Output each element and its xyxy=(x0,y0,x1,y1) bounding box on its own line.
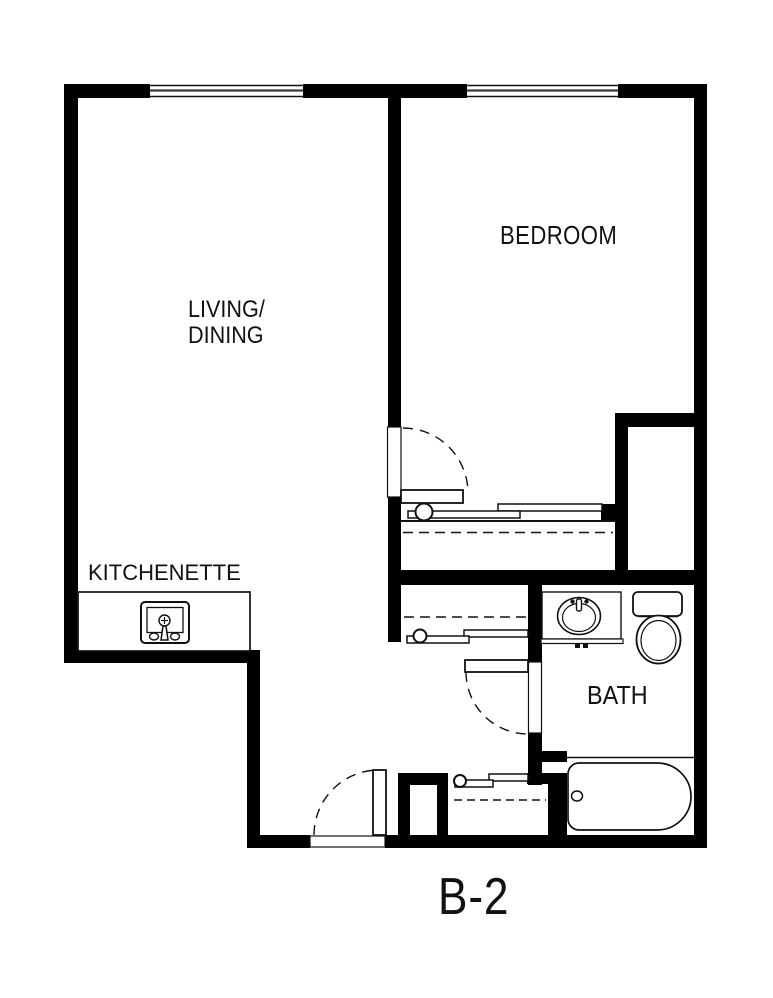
living-label-line1: LIVING/ xyxy=(188,297,265,323)
window-living xyxy=(150,84,303,98)
floor-plan-drawing xyxy=(0,0,773,998)
living-dining-label: LIVING/ DINING xyxy=(188,297,265,349)
utility-chase xyxy=(398,773,448,838)
bedroom-label: BEDROOM xyxy=(500,222,617,248)
bathtub xyxy=(567,758,694,831)
toilet xyxy=(633,592,682,664)
unit-title: B-2 xyxy=(438,871,509,923)
bath-door xyxy=(465,660,542,734)
bedroom-closet xyxy=(401,504,615,533)
slider-wheel xyxy=(416,504,433,521)
bedroom-door xyxy=(388,427,469,503)
floor-plan-b2: BEDROOM LIVING/ DINING KITCHENETTE BATH … xyxy=(0,0,773,998)
bath-label: BATH xyxy=(587,682,648,708)
exterior-walls xyxy=(64,84,707,848)
bathroom-sink xyxy=(558,598,601,635)
kitchen-sink xyxy=(141,602,189,643)
kitchenette-label: KITCHENETTE xyxy=(88,562,241,584)
slider-wheel xyxy=(454,775,466,787)
hall-closet xyxy=(404,617,528,643)
slider-wheel xyxy=(414,630,427,643)
interior-walls xyxy=(388,98,707,848)
living-label-line2: DINING xyxy=(188,323,265,349)
entry-door xyxy=(310,770,386,847)
window-bedroom xyxy=(467,84,618,98)
